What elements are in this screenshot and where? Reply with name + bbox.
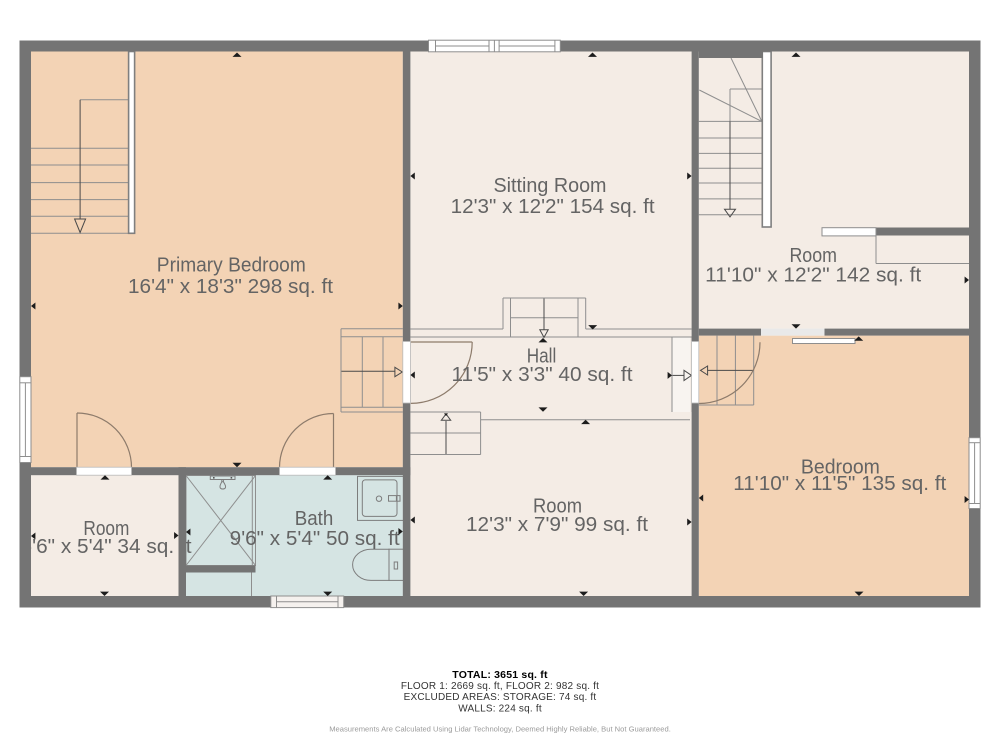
svg-text:6'6" x 5'4" 34 sq. ft: 6'6" x 5'4" 34 sq. ft bbox=[21, 536, 192, 558]
svg-text:Measurements Are Calculated Us: Measurements Are Calculated Using Lidar … bbox=[329, 725, 671, 734]
svg-text:Bath: Bath bbox=[295, 508, 334, 530]
svg-text:Sitting Room: Sitting Room bbox=[494, 175, 607, 197]
svg-text:16'4" x 18'3" 298 sq. ft: 16'4" x 18'3" 298 sq. ft bbox=[128, 276, 333, 298]
svg-text:EXCLUDED AREAS: STORAGE: 74 sq: EXCLUDED AREAS: STORAGE: 74 sq. ft bbox=[404, 692, 597, 703]
svg-text:12'3" x 12'2" 154 sq. ft: 12'3" x 12'2" 154 sq. ft bbox=[451, 196, 655, 218]
svg-text:TOTAL: 3651 sq. ft: TOTAL: 3651 sq. ft bbox=[452, 669, 548, 681]
svg-text:FLOOR 1: 2669 sq. ft, FLOOR 2:: FLOOR 1: 2669 sq. ft, FLOOR 2: 982 sq. f… bbox=[401, 681, 599, 692]
svg-text:11'10" x 12'2" 142 sq. ft: 11'10" x 12'2" 142 sq. ft bbox=[705, 264, 921, 286]
svg-text:Primary Bedroom: Primary Bedroom bbox=[157, 255, 306, 277]
svg-text:12'3" x 7'9" 99 sq. ft: 12'3" x 7'9" 99 sq. ft bbox=[466, 514, 648, 536]
svg-text:WALLS: 224 sq. ft: WALLS: 224 sq. ft bbox=[458, 703, 542, 714]
svg-text:11'5" x 3'3" 40 sq. ft: 11'5" x 3'3" 40 sq. ft bbox=[452, 364, 633, 386]
svg-text:11'10" x 11'5" 135 sq. ft: 11'10" x 11'5" 135 sq. ft bbox=[733, 473, 946, 495]
svg-text:9'6" x 5'4" 50 sq. ft: 9'6" x 5'4" 50 sq. ft bbox=[230, 528, 400, 550]
